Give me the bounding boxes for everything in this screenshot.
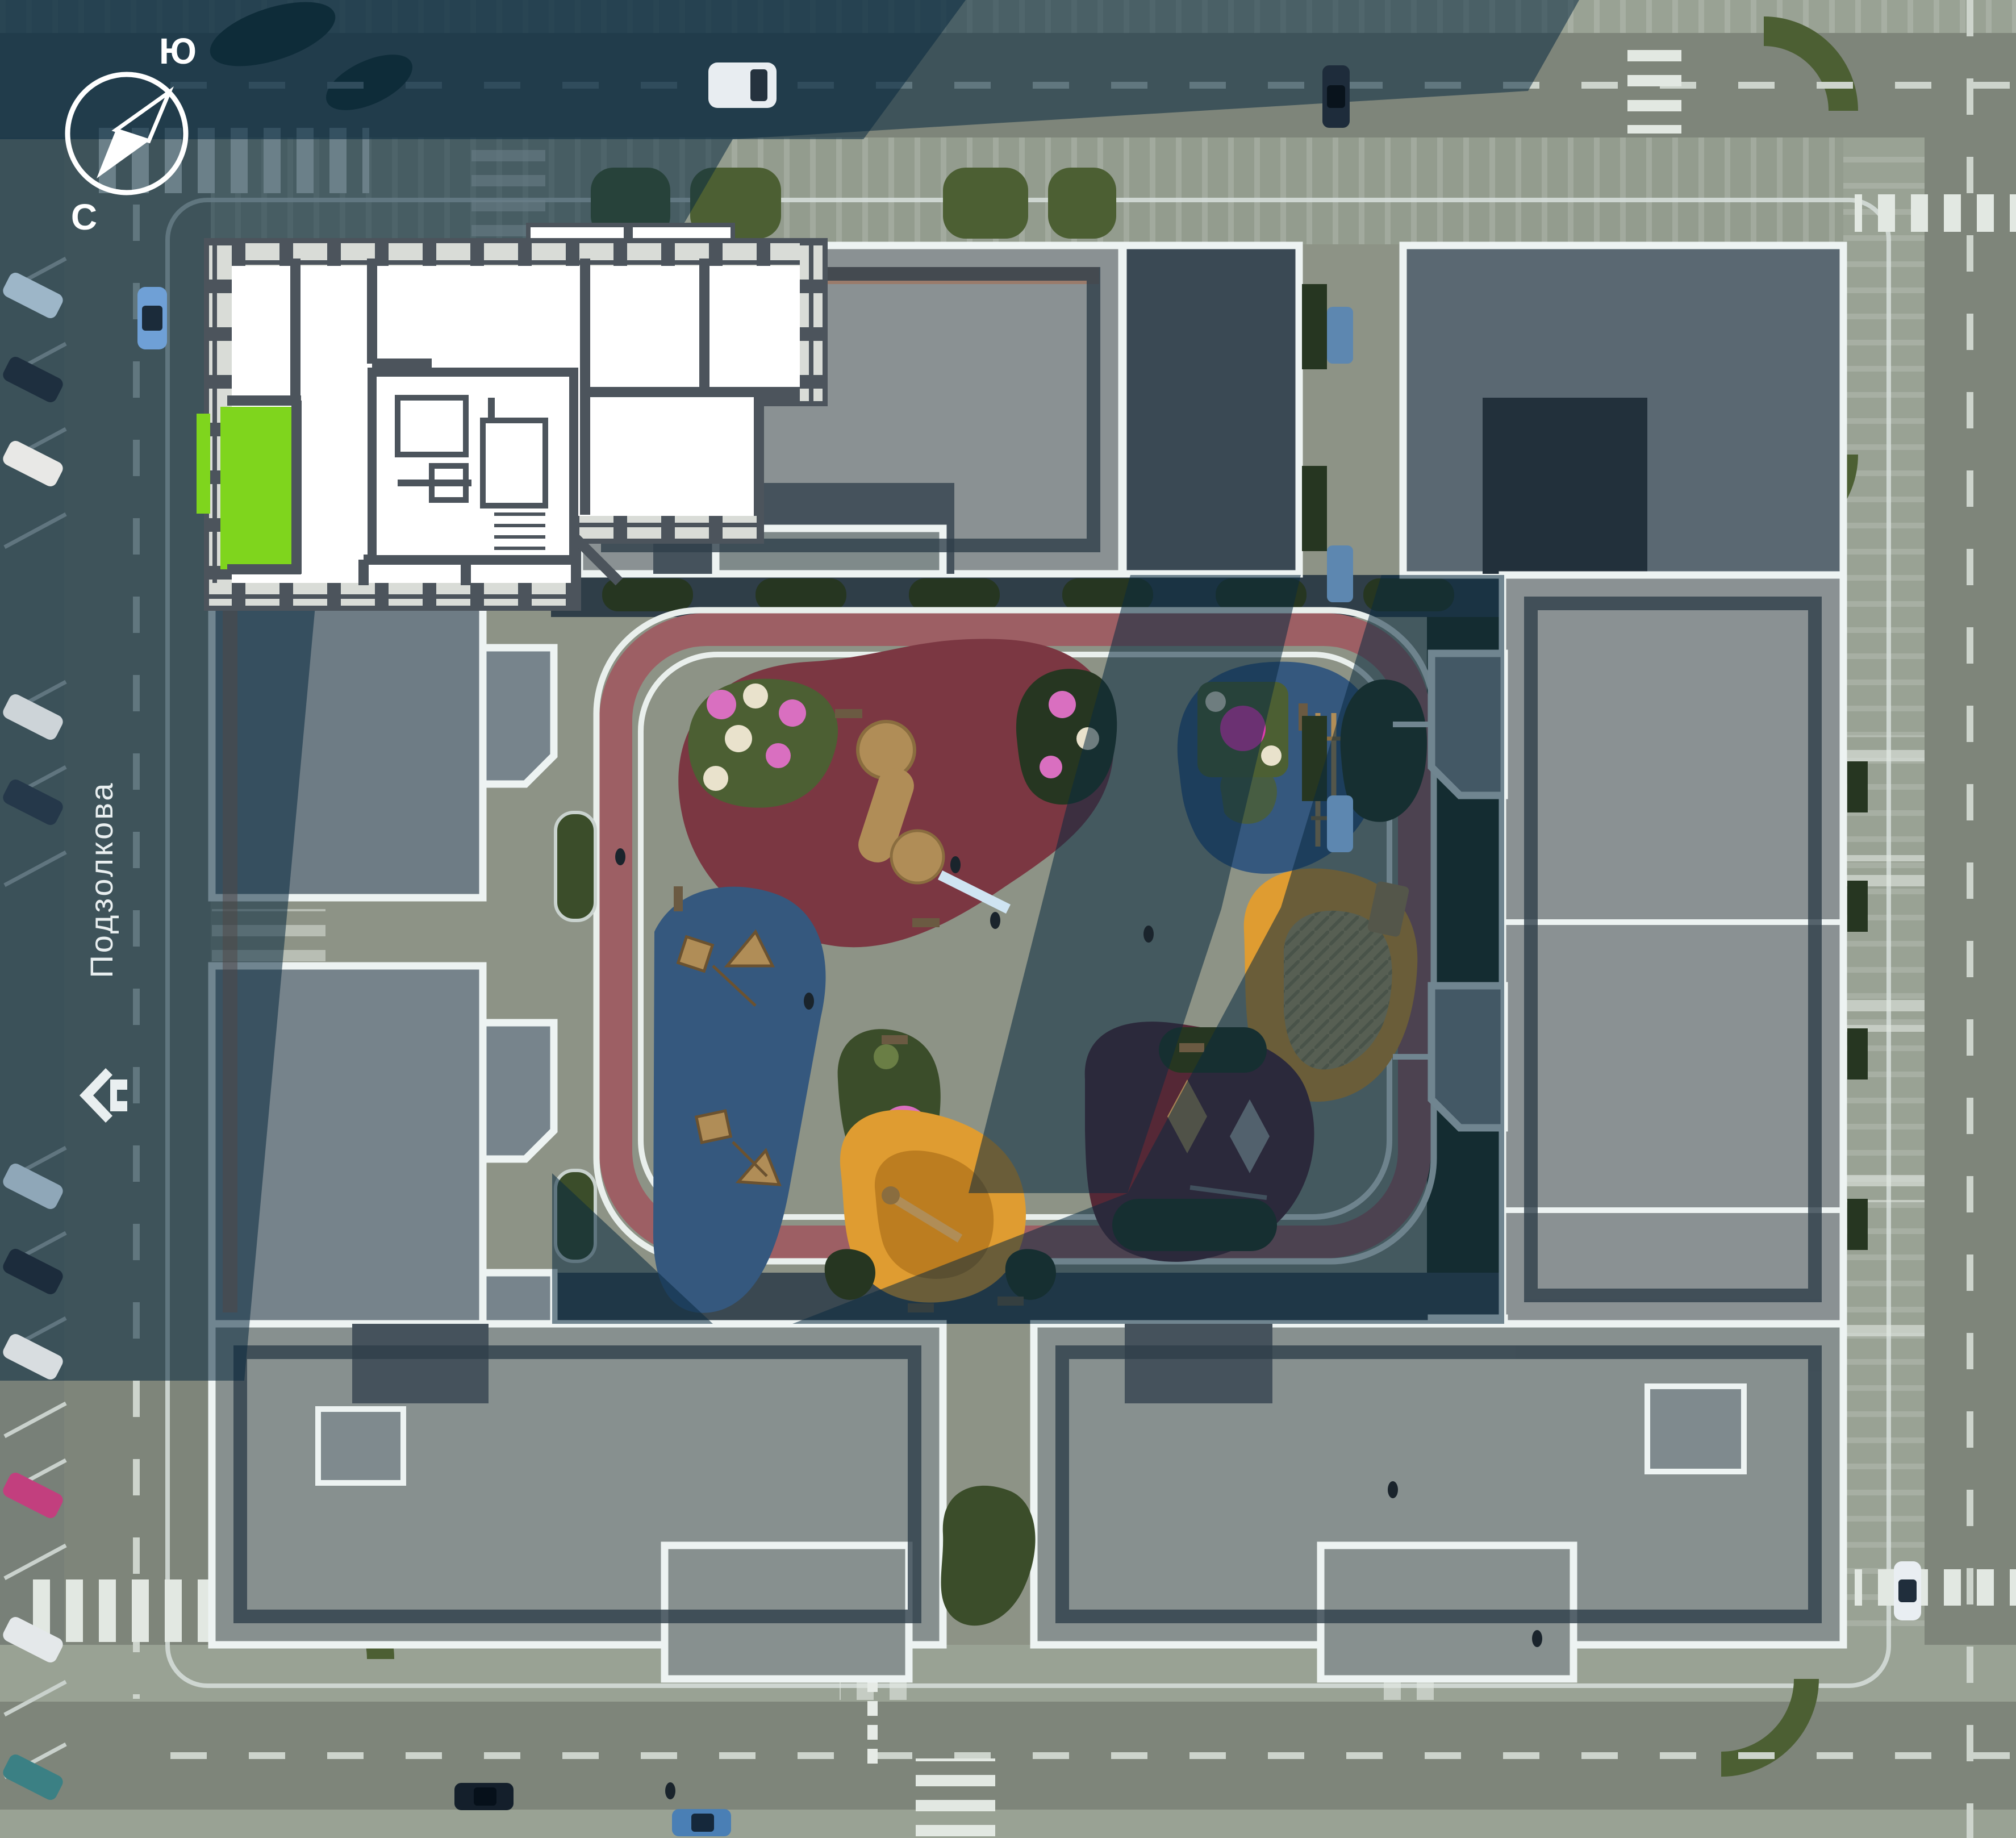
crosswalk xyxy=(1627,43,1681,134)
car xyxy=(454,1783,514,1810)
compass-label-south: Ю xyxy=(159,31,197,72)
car xyxy=(1894,1561,1921,1620)
selected-apartment[interactable] xyxy=(220,407,292,569)
car xyxy=(137,287,167,349)
aerial-site-plan: Ю С Подзолкова xyxy=(0,0,2016,1838)
crosswalk xyxy=(1855,194,2016,232)
crosswalk xyxy=(1855,1569,2016,1606)
aerial-site-plan-page: Ю С Подзолкова xyxy=(0,0,2016,1838)
selected-apartment-balcony xyxy=(197,414,210,514)
building-top-dark xyxy=(1123,245,1299,574)
stair-tower xyxy=(483,648,554,784)
street-name: Подзолкова xyxy=(84,781,119,978)
compass-label-north: С xyxy=(71,197,97,237)
car xyxy=(708,62,777,108)
car xyxy=(672,1809,731,1836)
road-bottom xyxy=(0,1702,2016,1810)
road-right xyxy=(1925,0,2016,1838)
crosswalk xyxy=(916,1758,995,1838)
car xyxy=(1322,65,1350,128)
stair-tower xyxy=(483,1023,554,1159)
